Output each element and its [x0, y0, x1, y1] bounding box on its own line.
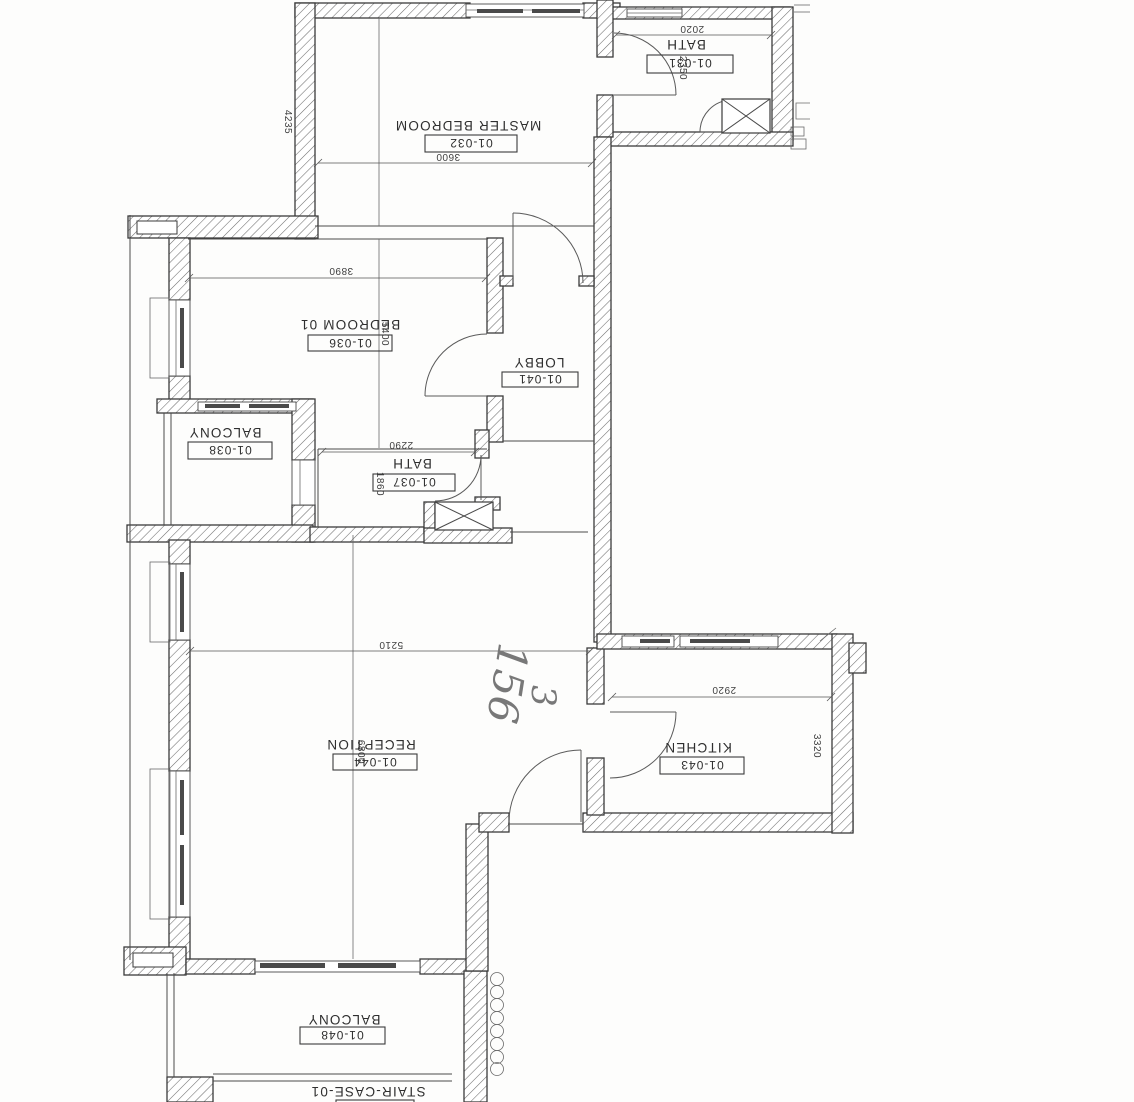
wall-segment [420, 959, 468, 974]
wall-segment [464, 971, 487, 1102]
room-code-bedroom01: 01-036 [328, 336, 371, 350]
walls [124, 0, 866, 1102]
wall-segment [772, 7, 793, 140]
column-box [133, 953, 173, 967]
dim-master-height: 4235 [282, 110, 293, 134]
room-code-bath-top: 01-031 [668, 56, 711, 70]
window-glazing [180, 572, 184, 632]
door-swing [513, 213, 583, 283]
room-code-kitchen: 01-043 [680, 758, 723, 772]
wall-segment [310, 527, 432, 542]
room-label-balcony-lower: BALCONY [308, 1012, 381, 1027]
handwritten-number-156: 156 [477, 640, 538, 727]
handwritten-annotations: 156 3 [477, 640, 563, 727]
wall-segment [475, 430, 489, 458]
wall-segment [500, 276, 513, 286]
wall-segment [466, 824, 488, 971]
window-glazing [690, 639, 750, 643]
wall-segment [479, 813, 509, 832]
wall-segment [169, 238, 190, 300]
room-code-master: 01-032 [449, 136, 492, 150]
column-box [137, 221, 177, 234]
wall-segment [169, 640, 190, 771]
wall-segment [597, 95, 613, 137]
room-label-bath-top: BATH [666, 37, 706, 52]
handwritten-number-3: 3 [523, 685, 563, 707]
floor-plan-drawing: 2020 2350 3600 4235 3890 5400 2290 1860 … [0, 0, 1134, 1102]
window-frame [150, 562, 170, 642]
doors [425, 33, 731, 822]
wall-segment [849, 643, 866, 673]
room-label-bath-mid: BATH [392, 456, 432, 471]
wall-segment [597, 0, 613, 57]
window-glazing [260, 963, 325, 968]
wall-segment [295, 3, 470, 18]
door-swing [425, 334, 487, 396]
dim-bedroom01-width: 3890 [329, 265, 353, 276]
door-swing [435, 455, 481, 501]
wall-segment [587, 758, 604, 815]
wall-segment [295, 3, 315, 239]
room-label-bedroom01: BEDROOM 01 [300, 317, 401, 332]
window-glazing [338, 963, 396, 968]
dim-reception-width: 5210 [379, 639, 403, 650]
dim-bath-mid-height: 1860 [374, 472, 385, 496]
dim-master-width: 3600 [436, 151, 460, 162]
dim-kitchen-width: 2920 [712, 684, 736, 695]
window [169, 300, 190, 376]
room-code-lobby: 01-041 [518, 372, 561, 386]
wall-segment [579, 276, 594, 286]
room-code-reception: 01-044 [353, 755, 396, 769]
window-frame [150, 298, 169, 378]
window-glazing [640, 639, 670, 643]
wall-segment [594, 137, 611, 642]
window [292, 460, 315, 505]
room-label-staircase: STAIR-CASE-01 [310, 1084, 425, 1099]
window-glazing [180, 780, 184, 835]
window-glazing [532, 9, 580, 13]
window [169, 564, 190, 640]
dim-bath-mid-width: 2290 [389, 439, 413, 450]
wall-segment [169, 540, 190, 564]
bracket-mark [796, 103, 810, 119]
wall-segment [587, 648, 604, 704]
room-label-balcony-upper: BALCONY [189, 425, 262, 440]
room-code-balcony-upper: 01-038 [208, 443, 251, 457]
room-code-balcony-lower: 01-048 [320, 1028, 363, 1042]
room-label-lobby: LOBBY [513, 355, 564, 370]
door-swing [509, 750, 581, 822]
window-frame [150, 769, 170, 919]
wall-segment [600, 132, 793, 146]
window-glazing [180, 845, 184, 905]
wall-segment [167, 1077, 213, 1102]
dim-kitchen-height: 3320 [811, 734, 822, 758]
scallop-edge [491, 973, 504, 1076]
room-label-master: MASTER BEDROOM [395, 118, 542, 133]
window-glazing [205, 404, 240, 408]
floor-plan-sheet: 2020 2350 3600 4235 3890 5400 2290 1860 … [0, 0, 1134, 1102]
window-glazing [249, 404, 289, 408]
room-label-kitchen: KITCHEN [664, 740, 732, 755]
room-label-reception: RECEPTION [326, 737, 416, 752]
window-glazing [477, 9, 523, 13]
wall-segment [583, 813, 853, 832]
dim-bath-top-width: 2020 [680, 23, 704, 34]
wall-segment [127, 525, 313, 542]
window [169, 771, 190, 917]
room-code-bath-mid: 01-037 [392, 475, 435, 489]
wall-segment [186, 959, 255, 974]
window-glazing [180, 308, 184, 368]
